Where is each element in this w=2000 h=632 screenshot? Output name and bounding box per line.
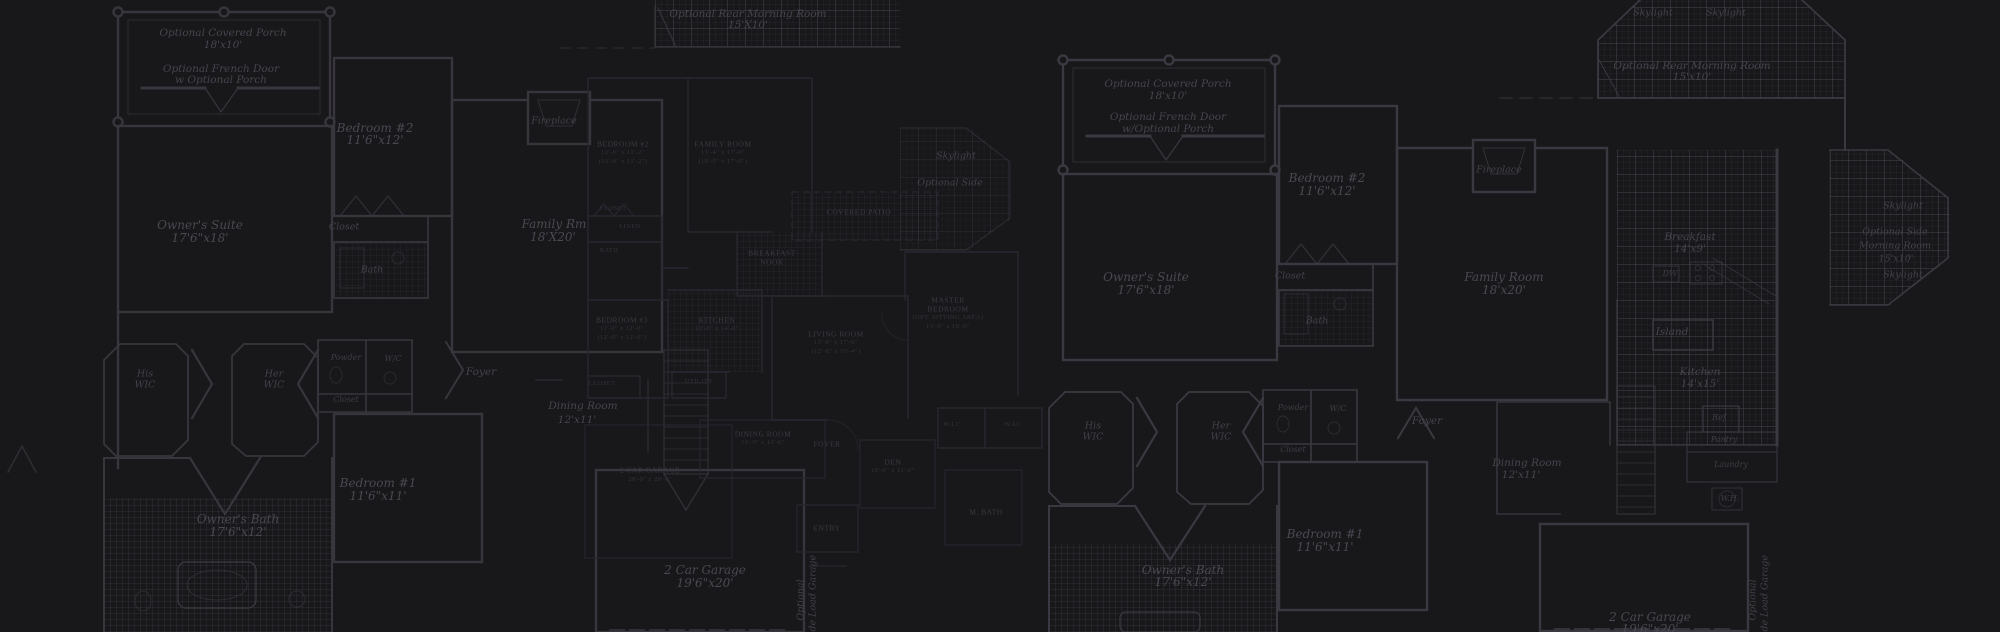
room-label: WIC [1083, 432, 1104, 442]
room-label: FOYER [813, 440, 840, 448]
room-label: 14'x9' [1674, 244, 1706, 255]
room-label: Optional Side [1862, 227, 1928, 237]
room-label: Side Load Garage [1760, 555, 1770, 632]
room-label: Island [1656, 327, 1689, 338]
room-label: 15'-4" x 17'-0" [701, 150, 745, 157]
room-label: BATH [600, 248, 619, 255]
room-label: WIC [135, 380, 156, 390]
room-label: 17'6"x18' [1117, 284, 1174, 296]
room-label: Optional Side [917, 178, 983, 188]
room-label: Bedroom #2 [1289, 172, 1366, 184]
room-label: Skylight [1706, 8, 1746, 18]
room-label: MASTER [931, 296, 964, 304]
room-label: Closet [333, 396, 359, 404]
room-label: Owner's Suite [157, 219, 243, 231]
room-label: 13'-6" x 17'-6" [814, 340, 858, 347]
room-label: FAMILY ROOM [694, 140, 751, 148]
room-label: M. BATH [969, 508, 1003, 516]
room-label: Side Load Garage [808, 555, 818, 632]
room-label: (OPT. SITTING AREA) [912, 315, 983, 322]
room-label: 13'-0" x 16'-0" [926, 324, 970, 331]
room-label: BEDROOM #3 [596, 316, 648, 324]
room-label: LINEN [619, 224, 641, 231]
room-label: Closet [329, 222, 359, 232]
room-label: Optional [1748, 579, 1758, 620]
room-label: Laundry [1714, 461, 1748, 469]
room-label: 19'6"x20' [1621, 623, 1678, 632]
room-label: Optional Rear Morning Room [669, 9, 826, 20]
room-label: DEN [885, 458, 902, 466]
room-label: CLOSET [589, 381, 616, 388]
room-label: 18'x10' [1149, 91, 1187, 102]
room-label: KITCHEN [699, 316, 735, 324]
room-label: W/C [384, 355, 401, 363]
room-label: (13'-0" x 11'-2") [599, 159, 648, 166]
room-label: 15'x10' [1879, 254, 1914, 264]
room-label: 19'6"x20' [676, 577, 733, 589]
room-label: Optional French Door [1110, 112, 1226, 123]
room-label: (12'-0" x 12'-0") [597, 335, 646, 342]
room-label: Bath [1306, 316, 1329, 326]
room-label: 11'6"x12' [1298, 185, 1355, 197]
room-label: w Optional Porch [175, 75, 267, 86]
room-label: Morning Room [1859, 241, 1931, 251]
room-label: Skylight [1883, 270, 1923, 280]
room-label: Powder [331, 354, 361, 362]
room-label: CLOSET [600, 206, 627, 213]
room-label: Optional Covered Porch [1104, 79, 1231, 90]
room-label: 11'6"x11' [349, 490, 406, 502]
room-label: UTILITY [685, 379, 713, 386]
room-label: Skylight [1633, 8, 1673, 18]
room-label: His [137, 369, 153, 379]
room-label: 17'6"x12' [209, 526, 266, 538]
room-label: 17'6"x18' [171, 232, 228, 244]
room-label: (12'-8" x 19'-4") [811, 349, 860, 356]
room-label: W.I.C. [1004, 422, 1023, 429]
room-label: 18'x20' [1482, 284, 1526, 296]
room-label: Family Room [1464, 271, 1543, 283]
room-label: Dining Room [1492, 458, 1561, 469]
blueprint-collage: Optional Covered Porch18'x10'Optional Fr… [0, 0, 2000, 632]
room-label: Fireplace [1476, 165, 1522, 175]
room-label: ENTRY [813, 524, 840, 532]
room-label: Powder [1278, 404, 1308, 412]
room-label: 11'-0" x 13'-6" [741, 440, 785, 447]
room-label: DW [1663, 270, 1678, 278]
room-label: 18'X20' [530, 231, 576, 243]
room-label: BEDROOM #2 [597, 140, 649, 148]
room-label: 15'X10' [728, 20, 768, 31]
room-label: LIVING ROOM [808, 330, 864, 338]
room-label: 18'x10' [204, 40, 242, 51]
room-label: His [1085, 421, 1101, 431]
room-label: 15'x10' [1673, 72, 1711, 83]
room-label: Foyer [1412, 416, 1442, 427]
room-label: W/C [1329, 405, 1346, 413]
room-label: DINING ROOM [735, 430, 792, 438]
room-label: Bedroom #1 [340, 477, 417, 489]
room-label: Owner's Suite [1103, 271, 1189, 283]
room-label: BEDROOM [927, 305, 968, 313]
room-label: Kitchen [1679, 367, 1720, 378]
floorplan-labels: Optional Covered Porch18'x10'Optional Fr… [0, 0, 2000, 632]
room-label: (19'-0" x 17'-0") [698, 159, 747, 166]
room-label: Breakfast [1664, 232, 1715, 243]
room-label: Optional [796, 579, 806, 620]
room-label: 11'-0" x 12'-0" [600, 326, 644, 333]
room-label: 12'-0" x 11'-2" [601, 150, 645, 157]
room-label: Optional Rear Morning Room [1613, 61, 1770, 72]
room-label: 14'x15' [1681, 379, 1719, 390]
room-label: Foyer [466, 367, 496, 378]
room-label: Family Rm [522, 218, 587, 230]
room-label: Bedroom #1 [1287, 528, 1364, 540]
room-label: 17'6"x12' [1154, 576, 1211, 588]
room-label: Her [1212, 421, 1230, 431]
room-label: Skylight [1883, 201, 1923, 211]
room-label: Closet [1280, 446, 1306, 454]
room-label: 2 Car Garage [664, 564, 746, 576]
room-label: BREAKFAST [748, 249, 796, 257]
room-label: NOOK [760, 258, 784, 266]
room-label: 11'6"x11' [1296, 541, 1353, 553]
room-label: Closet [1275, 271, 1305, 281]
room-label: Optional French Door [163, 64, 279, 75]
room-label: Skylight [936, 151, 976, 161]
room-label: Pantry [1711, 436, 1738, 444]
room-label: Her [265, 369, 283, 379]
room-label: Ref [1712, 414, 1726, 422]
room-label: 20'-0" x 20'-0" [628, 477, 672, 484]
room-label: W.H. [1721, 495, 1740, 503]
room-label: WIC [1211, 432, 1232, 442]
room-label: WIC [264, 380, 285, 390]
room-label: Dining Room [548, 401, 617, 412]
room-label: 10'-0" x 11'-0" [871, 468, 915, 475]
room-label: Fireplace [531, 116, 577, 126]
room-label: Owner's Bath [197, 513, 279, 525]
room-label: 12'x11' [558, 415, 596, 426]
room-label: 2 CAR GARAGE [620, 466, 680, 474]
room-label: Optional Covered Porch [159, 28, 286, 39]
room-label: 12'x11' [1502, 470, 1540, 481]
room-label: Bath [361, 265, 384, 275]
room-label: 10'-8" x 14'-0" [695, 326, 739, 333]
room-label: 11'6"x12' [346, 134, 403, 146]
room-label: COVERED PATIO [827, 208, 891, 216]
room-label: W.I.C. [943, 422, 962, 429]
room-label: w/Optional Porch [1122, 124, 1214, 135]
